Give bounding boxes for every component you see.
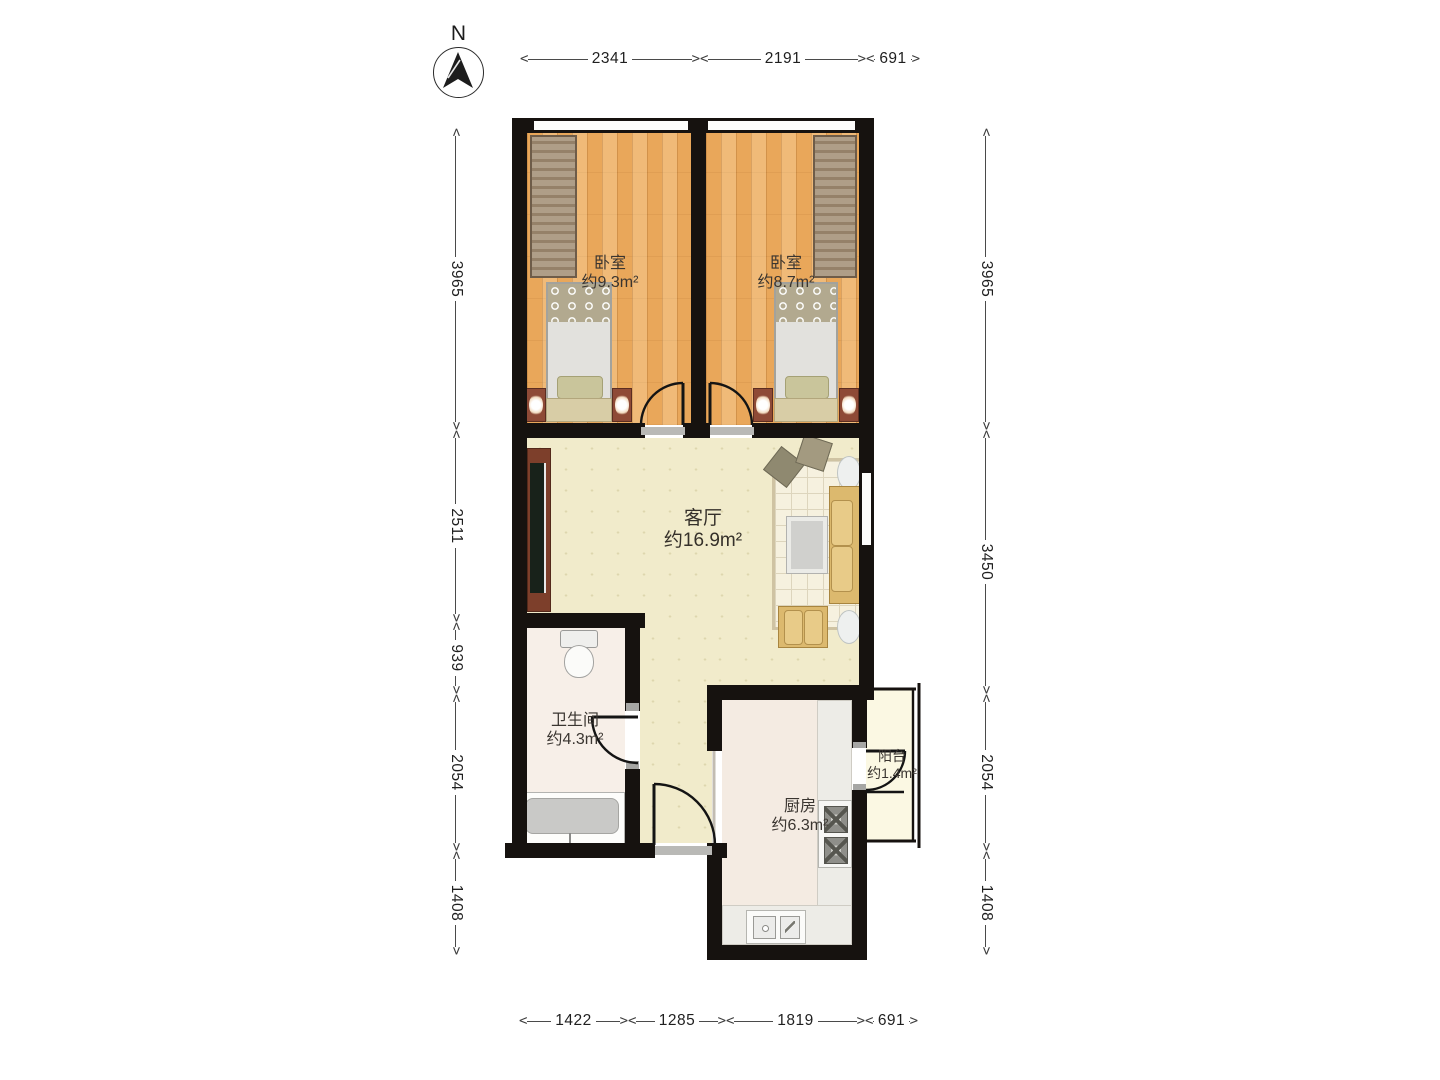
dim-left-4: < 1408 > — [448, 851, 464, 955]
dim-left-3: < 2054 > — [448, 694, 464, 851]
dim-arrow: > — [858, 51, 866, 67]
room-label-bedroom1: 卧室 约9.3m² — [558, 255, 662, 293]
dim-arrow: < — [700, 51, 708, 67]
room-area: 约16.9m² — [638, 530, 768, 552]
dim-arrow: < — [726, 1013, 734, 1029]
dim-arrow: < — [448, 128, 464, 136]
dim-arrow: < — [448, 430, 464, 438]
dim-bottom-2: < 1819 > — [726, 1013, 865, 1029]
room-name: 厨房 — [748, 798, 852, 817]
dim-arrow: < — [628, 1013, 636, 1029]
dim-top-2: < 691 > — [866, 51, 920, 67]
dim-arrow: < — [448, 851, 464, 859]
room-name: 阳台 — [852, 748, 932, 765]
dim-arrow: > — [448, 947, 464, 955]
dim-arrow: > — [718, 1013, 726, 1029]
room-label-kitchen: 厨房 约6.3m² — [748, 798, 852, 836]
dim-arrow: < — [865, 1013, 873, 1029]
dim-bottom-3: < 691 > — [865, 1013, 918, 1029]
room-name: 卧室 — [558, 255, 662, 274]
dim-bottom-0: < 1422 > — [519, 1013, 628, 1029]
room-area: 约1.4m² — [852, 765, 932, 782]
dim-arrow: > — [448, 422, 464, 430]
dim-arrow: > — [620, 1013, 628, 1029]
dim-arrow: > — [910, 1013, 918, 1029]
dim-arrow: < — [519, 1013, 527, 1029]
room-area: 约6.3m² — [748, 817, 852, 836]
dim-arrow: < — [978, 694, 994, 702]
dim-top-0: < 2341 > — [520, 51, 700, 67]
dim-arrow: < — [520, 51, 528, 67]
dim-top-1: < 2191 > — [700, 51, 866, 67]
dim-right-1: < 3450 > — [978, 430, 994, 694]
dim-left-1: < 2511 > — [448, 430, 464, 622]
dim-arrow: > — [857, 1013, 865, 1029]
dim-arrow: < — [978, 851, 994, 859]
door-bedroom1 — [641, 383, 683, 425]
dim-right-3: < 1408 > — [978, 851, 994, 955]
dim-arrow: < — [978, 128, 994, 136]
door-bedroom2 — [710, 383, 752, 425]
room-name: 客厅 — [638, 508, 768, 530]
dim-arrow: > — [978, 686, 994, 694]
dim-bottom-1: < 1285 > — [628, 1013, 726, 1029]
dim-left-0: < 3965 > — [448, 128, 464, 430]
dim-arrow: > — [978, 947, 994, 955]
room-name: 卫生间 — [523, 712, 627, 731]
room-label-balcony: 阳台 约1.4m² — [852, 748, 932, 781]
dim-arrow: > — [448, 614, 464, 622]
dim-arrow: > — [978, 422, 994, 430]
dim-arrow: < — [448, 694, 464, 702]
dim-arrow: > — [692, 51, 700, 67]
room-area: 约8.7m² — [734, 274, 838, 293]
dim-arrow: < — [448, 622, 464, 630]
door-entry — [654, 784, 715, 845]
room-label-bedroom2: 卧室 约8.7m² — [734, 255, 838, 293]
dim-right-2: < 2054 > — [978, 694, 994, 851]
room-name: 卧室 — [734, 255, 838, 274]
dim-arrow: > — [978, 843, 994, 851]
room-label-bathroom: 卫生间 约4.3m² — [523, 712, 627, 750]
room-label-living: 客厅 约16.9m² — [638, 508, 768, 553]
dim-arrow: < — [866, 51, 874, 67]
room-area: 约9.3m² — [558, 274, 662, 293]
dim-left-2: < 939 > — [448, 622, 464, 694]
dim-arrow: > — [448, 686, 464, 694]
dim-arrow: < — [978, 430, 994, 438]
room-area: 约4.3m² — [523, 731, 627, 750]
dim-arrow: > — [448, 843, 464, 851]
dim-arrow: > — [912, 51, 920, 67]
floor-plan: 卧室 约9.3m² 卧室 约8.7m² 客厅 约16.9m² 卫生间 约4.3m… — [0, 0, 1440, 1080]
dim-right-0: < 3965 > — [978, 128, 994, 430]
